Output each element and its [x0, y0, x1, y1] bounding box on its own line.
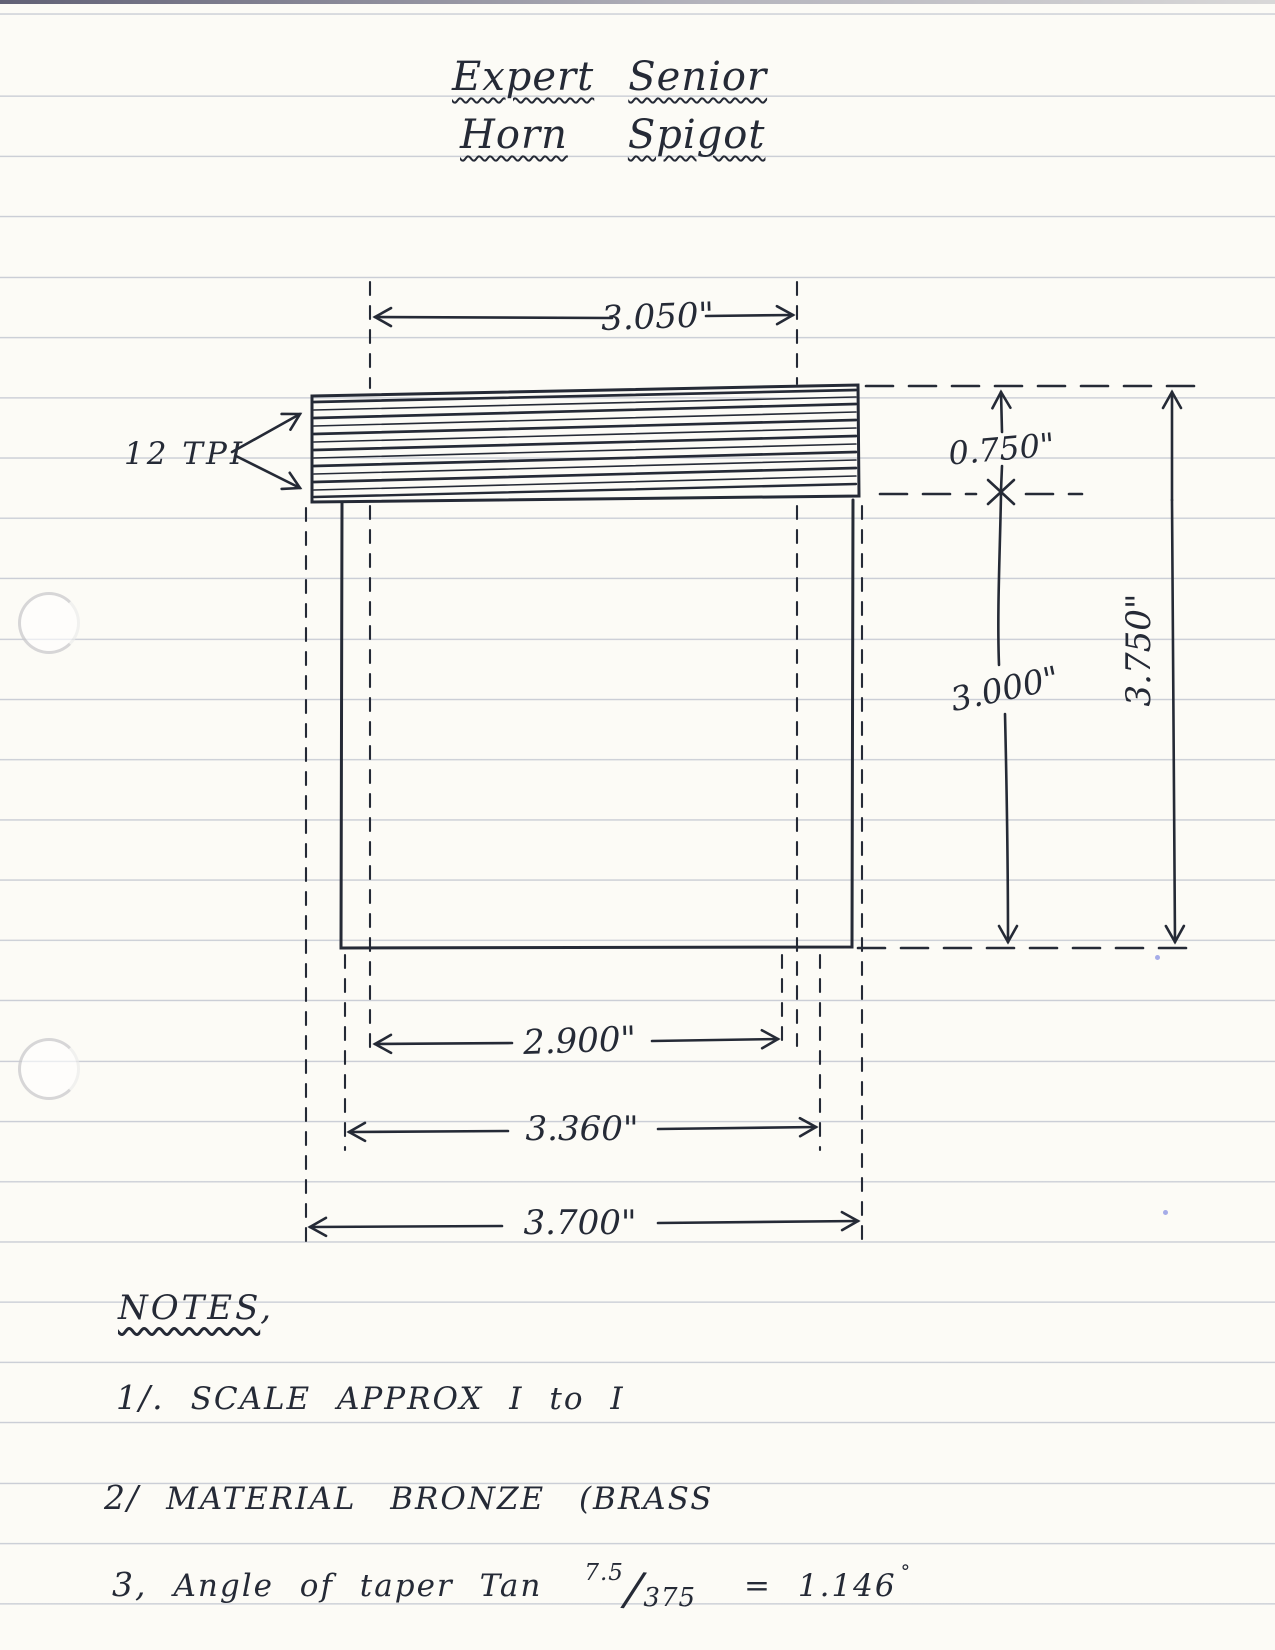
title-line-2: HornSpigot [460, 106, 767, 164]
title-word-spigot: Spigot [628, 112, 766, 158]
taper-result: = 1.146 [744, 1568, 897, 1604]
note-3: 3, Angle of taper Tan 7.5 / 375 = 1.146 … [112, 1562, 912, 1616]
notes-heading-word: NOTES [118, 1288, 260, 1328]
note-3-text: Angle of taper Tan [174, 1568, 543, 1604]
thread-tpi-label: 12 TPI [124, 436, 245, 472]
note-1: 1/. SCALE APPROX I to I [116, 1378, 625, 1417]
note-1-number: 1/. [116, 1378, 165, 1417]
scanned-notebook-page: 3.050" 2.900" 3.360" 3.700" 0.750" 3.000… [0, 0, 1275, 1650]
dim-thread-height-label: 0.750" [947, 425, 1056, 472]
note-2: 2/ MATERIAL BRONZE (BRASS [104, 1478, 714, 1517]
notes-heading: NOTES, [118, 1288, 274, 1328]
fraction-numerator: 7.5 [584, 1560, 624, 1586]
title-line-1: ExpertSenior [452, 48, 767, 106]
degree-symbol: ° [901, 1561, 913, 1583]
dim-outer-width-label: 3.700" [524, 1203, 637, 1243]
notes-heading-comma: , [260, 1288, 274, 1328]
taper-fraction: 7.5 / 375 [584, 1562, 696, 1616]
title-word-expert: Expert [452, 54, 594, 100]
fraction-denominator: 375 [643, 1583, 696, 1613]
note-2-number: 2/ [104, 1478, 140, 1517]
title-word-senior: Senior [628, 54, 767, 100]
dim-top-width-label: 3.050" [600, 295, 714, 339]
title-word-horn: Horn [460, 112, 568, 158]
page-title: ExpertSenior HornSpigot [452, 48, 767, 164]
body-outline [341, 500, 853, 948]
thread-hatching [314, 390, 856, 497]
note-2-text: MATERIAL BRONZE (BRASS [166, 1481, 713, 1517]
dim-body-width-label: 3.360" [526, 1109, 639, 1149]
note-3-number: 3, [112, 1565, 148, 1604]
dim-total-height-label: 3.750" [1119, 594, 1159, 707]
dim-inner-width-label: 2.900" [521, 1019, 636, 1063]
note-1-text: SCALE APPROX I to I [191, 1381, 625, 1417]
dim-body-height-label: 3.000" [947, 658, 1062, 719]
